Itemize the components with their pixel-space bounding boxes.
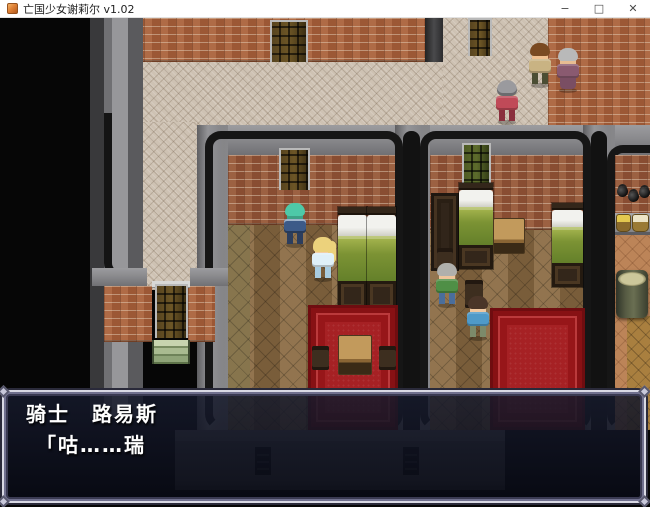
app-icon [7, 3, 18, 14]
maximize-button[interactable]: □ [582, 0, 616, 18]
bed-cover [459, 207, 493, 245]
hanging-pan-3 [639, 187, 650, 198]
dialog-corner-ornament [638, 495, 650, 507]
app-window: 亡国少女谢莉尔 v1.02 − □ ✕ [0, 0, 650, 507]
bed-pillow [552, 210, 583, 227]
bed-cover [367, 236, 396, 281]
npc-man-green-shirt [435, 263, 459, 307]
door-lower-left [155, 284, 188, 338]
lower-building-brick-right [188, 286, 215, 342]
npc-hair [558, 48, 578, 61]
bed-headboard [552, 203, 583, 210]
npc-legs [287, 232, 303, 244]
dialogue-window[interactable]: 骑士 路易斯 「咕……瑞 [2, 390, 646, 503]
bed-room1-left [338, 207, 367, 310]
building-side-shadow [425, 18, 443, 62]
npc-legs [439, 292, 455, 304]
npc-boy-blue-shirt [466, 296, 490, 340]
dialog-corner-ornament [0, 385, 10, 398]
bed-footboard [552, 263, 583, 287]
close-button[interactable]: ✕ [616, 0, 650, 18]
lower-building-brick-left [104, 286, 152, 342]
npc-torso [436, 279, 458, 293]
bed-headboard [459, 183, 493, 190]
npc-girl-blonde [311, 237, 335, 281]
game-canvas[interactable]: 骑士 路易斯 「咕……瑞 [0, 18, 650, 507]
npc-torso [284, 219, 306, 233]
bed-footboard [459, 245, 493, 269]
npc-knight-teal-hair [283, 203, 307, 247]
dialogue-text: 「咕……瑞 [36, 431, 644, 459]
npc-legs [560, 77, 576, 89]
divider-gap-b [591, 131, 607, 430]
lower-building-band-right [190, 268, 228, 286]
npc-torso [467, 312, 489, 326]
window-title: 亡国少女谢莉尔 v1.02 [23, 1, 135, 17]
npc-hair [313, 237, 333, 252]
npc-torso [557, 64, 579, 78]
npc-hair [285, 203, 305, 216]
food-basket-yellow [616, 214, 631, 232]
door-room1 [279, 148, 310, 190]
title-bar[interactable]: 亡国少女谢莉尔 v1.02 − □ ✕ [0, 0, 650, 18]
street-vertical [143, 122, 197, 290]
chair-room1-left [312, 346, 329, 370]
hanging-pan-2 [628, 191, 639, 202]
bed-pillow [459, 190, 493, 207]
npc-hair [437, 263, 457, 276]
npc-villager-man [528, 43, 552, 87]
npc-legs [315, 266, 331, 278]
npc-legs [532, 72, 548, 84]
door-top-street [270, 20, 308, 62]
npc-knight-red-armor [495, 80, 519, 124]
wall-frame-left-street [104, 113, 147, 279]
divider-gap-a [403, 131, 420, 430]
bed-room1-right [367, 207, 396, 310]
door-room2 [462, 143, 491, 188]
kitchen-north-wall [615, 155, 650, 215]
entrance-steps [152, 340, 190, 364]
bed-room2-middle [459, 183, 493, 269]
bed-cover [338, 236, 367, 281]
hanging-pan-1 [617, 186, 628, 197]
food-basket-pale [632, 214, 649, 232]
door-top-plaza [468, 18, 492, 56]
dialog-corner-ornament [0, 495, 10, 507]
table-room2 [493, 218, 525, 254]
bed-pillow [338, 215, 367, 236]
chair-room1-right [379, 346, 396, 370]
npc-hair [468, 296, 488, 309]
npc-helmet [497, 80, 517, 96]
minimize-button[interactable]: − [548, 0, 582, 18]
bed-headboard [338, 207, 367, 215]
npc-torso [529, 59, 551, 73]
barrel [616, 270, 648, 318]
bed-headboard [367, 207, 396, 215]
bed-pillow [367, 215, 396, 236]
table-room1 [338, 335, 372, 375]
npc-legs [470, 325, 486, 337]
bed-room2-right [552, 203, 583, 287]
dialogue-speaker: 骑士 路易斯 [26, 400, 644, 428]
lower-building-band-left [92, 268, 147, 286]
npc-hair [530, 43, 550, 56]
bed-cover [552, 227, 583, 264]
npc-torso [496, 96, 518, 110]
npc-legs [499, 109, 515, 121]
npc-torso [312, 253, 334, 267]
npc-old-woman [556, 48, 580, 92]
